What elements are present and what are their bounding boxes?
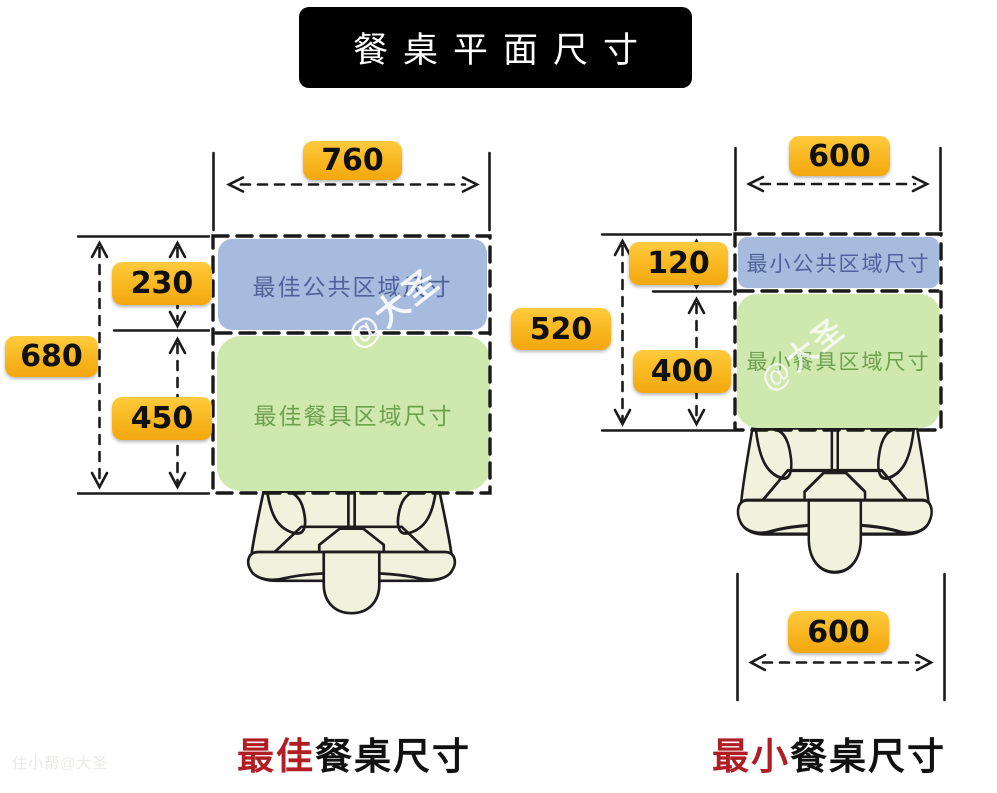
min-dining-zone-label: 最小餐具区域尺寸 [747, 346, 931, 376]
watermark-corner: 住小帮@大圣 [12, 752, 108, 773]
right-public-height-badge: 120 [629, 242, 728, 285]
left-total-height-badge: 680 [5, 336, 98, 377]
right-bottom-width-badge: 600 [788, 611, 889, 653]
left-chair-person-top-view [248, 491, 455, 613]
left-total-height-value: 680 [20, 339, 83, 374]
title-banner: 餐桌平面尺寸 [299, 7, 692, 88]
right-caption-rest: 餐桌尺寸 [790, 737, 946, 778]
best-dining-zone: 最佳餐具区域尺寸 [217, 336, 490, 491]
right-dining-height-badge: 400 [633, 350, 731, 393]
dining-table-dimensions-page: { "title": "餐桌平面尺寸", "watermarks": { "ov… [0, 0, 997, 793]
left-width-badge: 760 [303, 141, 402, 180]
right-dining-height-value: 400 [651, 354, 714, 389]
left-diagram-caption: 最佳餐桌尺寸 [237, 726, 471, 780]
right-width-badge: 600 [789, 136, 890, 176]
min-public-zone-label: 最小公共区域尺寸 [747, 248, 931, 278]
page-title: 餐桌平面尺寸 [338, 22, 653, 73]
min-dining-zone: 最小餐具区域尺寸 [737, 294, 940, 428]
right-bottom-width-value: 600 [807, 615, 870, 650]
right-public-height-value: 120 [647, 246, 710, 281]
left-caption-rest: 餐桌尺寸 [315, 737, 471, 778]
left-caption-highlight: 最佳 [237, 737, 315, 778]
right-total-height-badge: 520 [511, 308, 611, 350]
left-width-value: 760 [321, 143, 384, 178]
left-dining-height-value: 450 [131, 401, 194, 436]
right-total-height-value: 520 [530, 312, 593, 347]
best-dining-zone-label: 最佳餐具区域尺寸 [254, 397, 454, 431]
right-chair-person-top-view [738, 428, 932, 572]
left-dining-height-badge: 450 [112, 397, 212, 440]
left-public-height-badge: 230 [112, 262, 212, 305]
right-caption-highlight: 最小 [712, 737, 790, 778]
min-public-zone: 最小公共区域尺寸 [738, 237, 939, 288]
right-diagram-caption: 最小餐桌尺寸 [712, 726, 946, 780]
best-public-zone: 最佳公共区域尺寸 [218, 239, 487, 330]
right-width-value: 600 [808, 139, 871, 174]
left-public-height-value: 230 [131, 266, 194, 301]
best-public-zone-label: 最佳公共区域尺寸 [253, 268, 453, 302]
